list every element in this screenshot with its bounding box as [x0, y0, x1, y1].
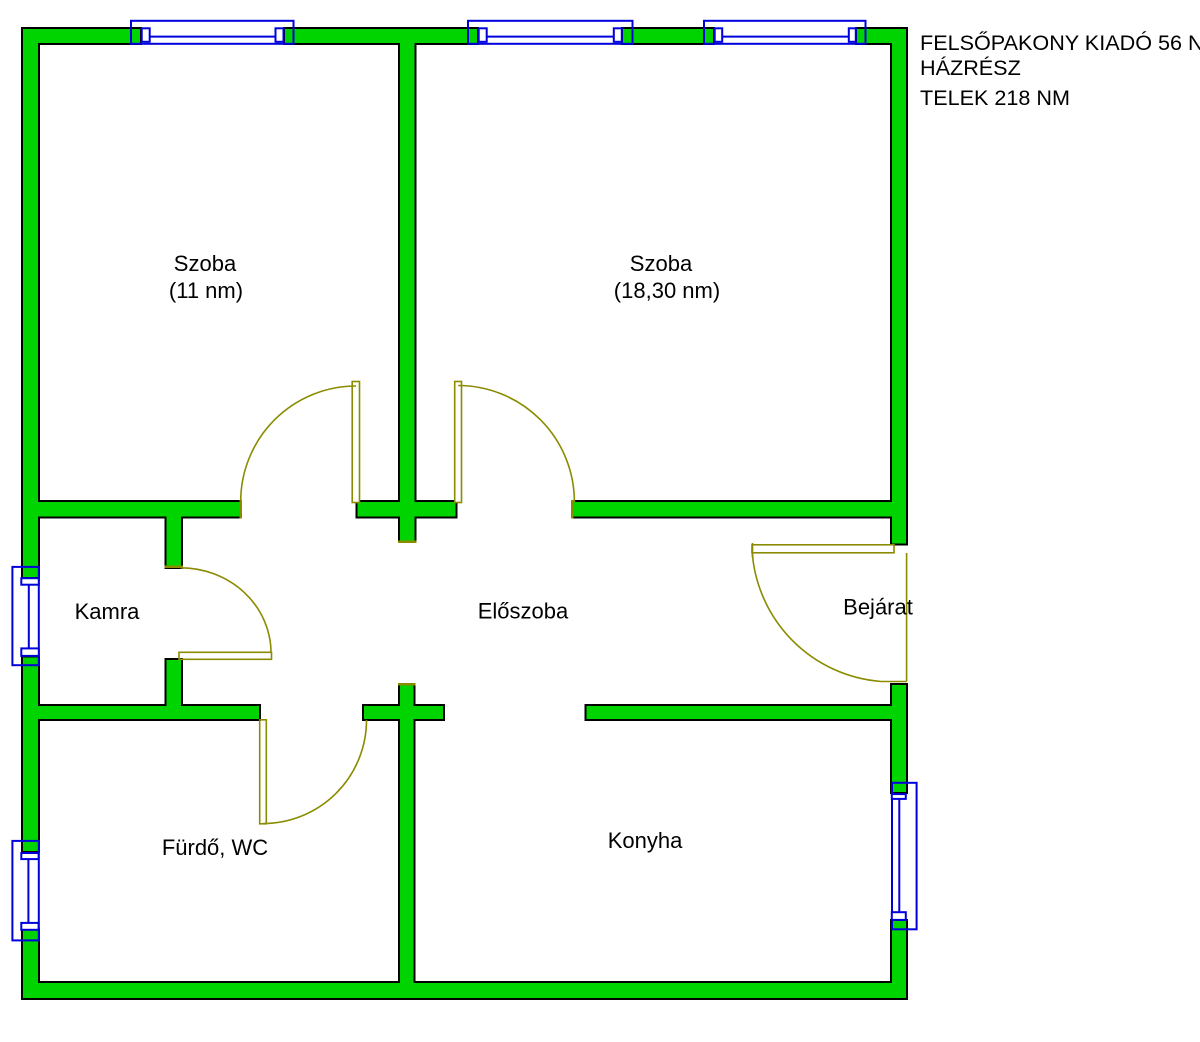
svg-text:TELEK 218 NM: TELEK 218 NM — [920, 85, 1070, 110]
svg-text:Fürdő, WC: Fürdő, WC — [162, 835, 268, 860]
svg-text:(11 nm): (11 nm) — [169, 278, 243, 303]
svg-text:Bejárat: Bejárat — [843, 595, 913, 620]
svg-text:(18,30 nm): (18,30 nm) — [614, 278, 720, 303]
svg-text:Szoba: Szoba — [630, 251, 693, 276]
svg-text:Konyha: Konyha — [608, 828, 683, 853]
svg-text:FELSŐPAKONY KIADÓ 56 NM: FELSŐPAKONY KIADÓ 56 NM — [920, 30, 1200, 55]
svg-text:Előszoba: Előszoba — [478, 599, 569, 624]
svg-text:Kamra: Kamra — [75, 599, 141, 624]
svg-text:HÁZRÉSZ: HÁZRÉSZ — [920, 55, 1021, 80]
svg-text:Szoba: Szoba — [174, 251, 237, 276]
